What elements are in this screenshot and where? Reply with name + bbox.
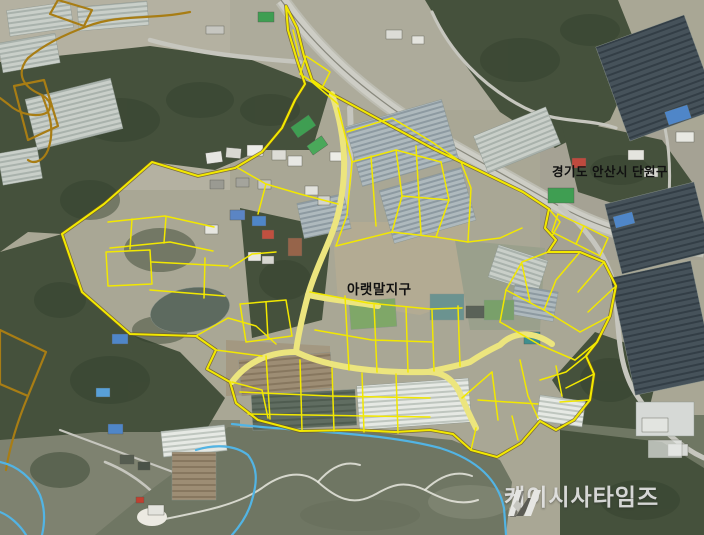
- watermark: 케이시사타임즈: [504, 486, 659, 509]
- kc-sisatimes-logo-icon: [504, 486, 542, 518]
- basemap-svg: [0, 0, 704, 535]
- aerial-map-viewport[interactable]: 경기도 안산시 단원구 아랫말지구 케이시사타임즈: [0, 0, 704, 535]
- region-label: 경기도 안산시 단원구: [552, 166, 668, 179]
- district-label: 아랫말지구: [347, 283, 412, 297]
